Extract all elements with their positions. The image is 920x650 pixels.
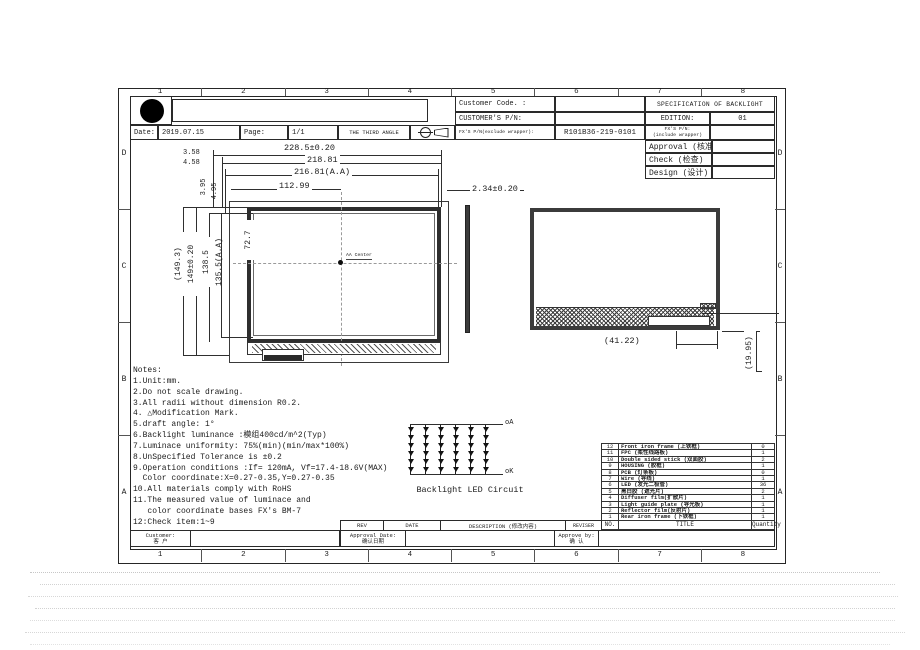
fx-pn-include-value: [710, 125, 775, 140]
parts-row: 12Front iron frame (上铁框)0: [601, 443, 775, 450]
zone-col-label: 8: [702, 549, 784, 562]
company-logo: [140, 99, 164, 123]
dim-top-offset2: 4.58: [182, 159, 201, 168]
parts-row: 3Light guide plate (导光板)1: [601, 501, 775, 508]
led-diode-icon: [438, 459, 444, 464]
spec-title: SPECIFICATION OF BACKLIGHT: [645, 96, 775, 112]
zone-row-label: C: [118, 210, 130, 323]
dim-width-aa: 216.81(A.A): [292, 167, 352, 178]
parts-cell-qty: 1: [751, 450, 774, 455]
third-angle-label: THE THIRD ANGLE: [338, 125, 410, 140]
led-diode-icon: [438, 467, 444, 472]
zone-col-label: 4: [369, 88, 452, 96]
scan-noise-line: [28, 596, 898, 597]
parts-row: 1Rear iron frame (下铁框)1: [601, 513, 775, 520]
edition-value: 01: [710, 112, 775, 125]
dim-top-offset1: 3.58: [182, 149, 201, 158]
parts-header-qty: Quantity: [751, 521, 774, 530]
zone-row-label: A: [118, 436, 130, 548]
customer-pn-value: [555, 112, 645, 125]
zone-row-label: B: [118, 323, 130, 436]
note-line: 10.All materials comply with RoHS: [133, 485, 398, 496]
dim-fpc-offset: (41.22): [602, 336, 642, 347]
customer-cn: 客 户: [153, 539, 167, 545]
design-label: Design (设计): [645, 166, 712, 179]
note-line: 2.Do not scale drawing.: [133, 388, 398, 399]
zone-col-label: 1: [119, 88, 202, 96]
led-diode-icon: [453, 443, 459, 448]
scan-noise-line: [30, 572, 880, 573]
dim-height-outline: 138.5: [201, 237, 213, 287]
zone-column-strip-top: 12345678: [119, 88, 784, 96]
parts-cell-title: Rear iron frame (下铁框): [619, 514, 751, 519]
logo-cell: [130, 96, 172, 125]
dim-width-overall: 228.5±0.20: [282, 143, 337, 154]
design-value: [712, 166, 775, 179]
led-circuit-grid: [410, 424, 505, 474]
parts-row: 6LED (发光二极管)36: [601, 481, 775, 488]
parts-cell-title: LED (发光二极管): [619, 482, 751, 487]
centerline-vertical: [341, 192, 342, 366]
note-line: 3.All radii without dimension R0.2.: [133, 399, 398, 410]
parts-cell-no: 6: [602, 482, 619, 487]
connector-leader-line: [702, 313, 779, 314]
zone-col-label: 2: [202, 88, 285, 96]
led-column: [470, 424, 471, 474]
led-diode-icon: [468, 451, 474, 456]
zone-row-label: B: [775, 323, 785, 436]
edition-label: EDITION:: [645, 112, 710, 125]
scan-noise-line: [40, 584, 895, 585]
fx-pn-exclude-label: FX'S P/N(exclude wrapper):: [455, 125, 555, 140]
note-line: 1.Unit:mm.: [133, 377, 398, 388]
zone-col-label: 7: [619, 88, 702, 96]
notes-block: Notes:1.Unit:mm.2.Do not scale drawing.3…: [133, 366, 398, 529]
zone-column-strip-bottom: 12345678: [119, 549, 784, 562]
led-diode-icon: [483, 443, 489, 448]
led-diode-icon: [453, 459, 459, 464]
led-diode-icon: [453, 451, 459, 456]
led-diode-icon: [408, 459, 414, 464]
led-column: [440, 424, 441, 474]
zone-col-label: 5: [452, 88, 535, 96]
parts-header-title: TITLE: [619, 521, 751, 530]
approval-date-value: [405, 530, 555, 547]
dim-fpc-height: (19.95): [744, 325, 756, 381]
zone-col-label: 4: [369, 549, 452, 562]
led-column: [425, 424, 426, 474]
led-cathode-rail: [410, 474, 503, 475]
aa-center-label: AA Center: [346, 252, 372, 260]
parts-cell-qty: 1: [751, 495, 774, 500]
led-column: [485, 424, 486, 474]
led-diode-icon: [423, 443, 429, 448]
led-anode-rail: [410, 424, 503, 425]
parts-row: 8PCB (灯条板)0: [601, 469, 775, 476]
front-view-active-area: [253, 213, 435, 336]
parts-cell-no: 4: [602, 495, 619, 500]
led-diode-icon: [483, 435, 489, 440]
customer-code-label: Customer Code. :: [455, 96, 555, 112]
dim-height-overall: 149±0.20: [186, 232, 198, 296]
led-diode-icon: [408, 435, 414, 440]
zone-col-label: 1: [119, 549, 202, 562]
parts-cell-qty: 36: [751, 482, 774, 487]
dim-width-half: 112.99: [277, 181, 312, 192]
approval-label: Approval (核准): [645, 140, 712, 153]
led-diode-icon: [453, 427, 459, 432]
ext-line: [183, 207, 247, 208]
back-view-connector-tab: [700, 303, 716, 309]
fx-pn-include-label-line2: (include wrapper): [653, 133, 702, 139]
zone-col-label: 6: [535, 88, 618, 96]
parts-table: 12Front iron frame (上铁框)011FPC (柔性线路板)11…: [601, 443, 775, 530]
led-circuit-caption: Backlight LED Circuit: [400, 485, 540, 495]
page-value: 1/1: [288, 125, 338, 140]
parts-cell-title: Front iron frame (上铁框): [619, 444, 751, 449]
third-angle-cone-icon: [434, 128, 449, 138]
customer-value: [190, 530, 340, 547]
led-diode-icon: [453, 467, 459, 472]
led-diode-icon: [468, 467, 474, 472]
aa-center-mark: [338, 260, 343, 265]
dim-height-half: 72.7: [243, 220, 255, 260]
dim-side-offset2: 4.95: [209, 176, 221, 206]
led-diode-icon: [438, 443, 444, 448]
led-diode-icon: [483, 459, 489, 464]
led-diode-icon: [453, 435, 459, 440]
led-diode-icon: [423, 427, 429, 432]
parts-cell-title: Double sided stick (双面胶): [619, 457, 751, 462]
parts-cell-title: Reflector film(反射片): [619, 508, 751, 513]
note-line: 6.Backlight luminance :模组400cd/m^2(Typ): [133, 431, 398, 442]
ext-line: [183, 355, 229, 356]
zone-col-label: 2: [202, 549, 285, 562]
zone-row-label: D: [775, 97, 785, 210]
parts-cell-title: FPC (柔性线路板): [619, 450, 751, 455]
fx-pn-value: R101B36-219-0101: [555, 125, 645, 140]
note-line: 4. △Modification Mark.: [133, 409, 398, 420]
approve-by-cn: 确 认: [569, 539, 583, 545]
led-diode-icon: [468, 435, 474, 440]
led-anode-terminal-label: oA: [505, 419, 513, 427]
note-line: color coordinate bases FX's BM-7: [133, 507, 398, 518]
dim-width-outline: 218.81: [305, 155, 340, 166]
zone-row-label: A: [775, 436, 785, 548]
date-value: 2019.07.15: [158, 125, 240, 140]
note-line: 8.UnSpecified Tolerance is ±0.2: [133, 453, 398, 464]
zone-col-label: 3: [286, 549, 369, 562]
zone-row-strip-left: DCBA: [118, 97, 130, 548]
scan-noise-line: [30, 644, 890, 645]
parts-cell-no: 9: [602, 463, 619, 468]
zone-col-label: 6: [535, 549, 618, 562]
parts-cell-title: 黑白胶 (遮光片): [619, 489, 751, 494]
led-diode-icon: [468, 443, 474, 448]
zone-row-strip-right: DCBA: [775, 97, 785, 548]
scan-noise-line: [25, 632, 905, 633]
led-diode-icon: [423, 451, 429, 456]
approval-date-cn: 确认日期: [362, 539, 384, 545]
parts-row: 2Reflector film(反射片)1: [601, 507, 775, 514]
ext-line: [222, 157, 223, 207]
led-column: [455, 424, 456, 474]
parts-row: 11FPC (柔性线路板)1: [601, 449, 775, 456]
led-diode-icon: [438, 451, 444, 456]
led-diode-icon: [423, 435, 429, 440]
side-view-bar: [465, 205, 470, 333]
parts-row: 4Diffuser film(扩散片)1: [601, 494, 775, 501]
parts-cell-title: Wire (导线): [619, 476, 751, 481]
fpc-connector-contact: [264, 355, 302, 360]
approval-value: [712, 140, 775, 153]
parts-cell-no: 1: [602, 514, 619, 519]
title-blank-box: [172, 99, 428, 122]
led-diode-icon: [423, 467, 429, 472]
led-diode-icon: [483, 451, 489, 456]
led-diode-icon: [438, 427, 444, 432]
led-column: [410, 424, 411, 474]
ext-line: [438, 169, 439, 213]
approve-by-value: [598, 530, 775, 547]
third-angle-circle-icon: [420, 127, 431, 138]
dim-line-fpc-height: [756, 332, 757, 372]
ext-line: [209, 213, 253, 214]
parts-header-no: NO.: [602, 521, 619, 530]
led-diode-icon: [468, 427, 474, 432]
parts-cell-title: Light guide plate (导光板): [619, 502, 751, 507]
date-label: Date:: [130, 125, 158, 140]
note-line: Notes:: [133, 366, 398, 377]
zone-col-label: 3: [286, 88, 369, 96]
note-line: 7.Luminace uniformity: 75%(min)(min/max*…: [133, 442, 398, 453]
note-line: 11.The measured value of luminace and: [133, 496, 398, 507]
scan-noise-line: [35, 608, 895, 609]
note-line: 5.draft angle: 1°: [133, 420, 398, 431]
led-cathode-terminal-label: oK: [505, 468, 513, 476]
parts-cell-qty: 1: [751, 463, 774, 468]
ext-line: [717, 331, 718, 349]
parts-cell-no: 11: [602, 450, 619, 455]
check-value: [712, 153, 775, 166]
page-label: Page:: [240, 125, 288, 140]
parts-row: 5黑白胶 (遮光片)2: [601, 488, 775, 495]
parts-row: 9HOUSING (胶框)1: [601, 462, 775, 469]
dim-thickness: 2.34±0.20: [470, 184, 520, 195]
customer-pn-label: CUSTOMER'S P/N:: [455, 112, 555, 125]
parts-header-row: NO.TITLEQuantity: [601, 520, 775, 531]
zone-col-label: 7: [619, 549, 702, 562]
scan-noise-line: [30, 620, 895, 621]
dim-height-aa: 135.5(A.A): [214, 227, 226, 297]
ext-line: [221, 337, 253, 338]
parts-cell-title: PCB (灯条板): [619, 470, 751, 475]
led-diode-icon: [468, 459, 474, 464]
dim-line-fpc-offset: [676, 344, 717, 345]
led-diode-icon: [408, 467, 414, 472]
zone-row-label: D: [118, 97, 130, 210]
check-label: Check (检查): [645, 153, 712, 166]
back-view-connector-notch: [648, 316, 710, 326]
parts-row: 10Double sided stick (双面胶)2: [601, 456, 775, 463]
led-diode-icon: [438, 435, 444, 440]
dim-height-overall-ref: (149.3): [173, 232, 185, 296]
note-line: 9.Operation conditions :If= 120mA, Vf=17…: [133, 464, 398, 475]
led-diode-icon: [408, 443, 414, 448]
led-diode-icon: [408, 427, 414, 432]
zone-row-label: C: [775, 210, 785, 323]
customer-code-value: [555, 96, 645, 112]
led-diode-icon: [483, 427, 489, 432]
ext-line: [676, 331, 677, 349]
note-line: Color coordinate:X=0.27-0.35,Y=0.27-0.35: [133, 474, 398, 485]
ext-line: [441, 150, 442, 207]
third-angle-symbols: [410, 125, 455, 140]
led-diode-icon: [408, 451, 414, 456]
led-diode-icon: [483, 467, 489, 472]
centerline-horizontal: [233, 263, 457, 264]
drawing-sheet: 12345678 12345678 DCBA DCBA Customer Cod…: [0, 0, 920, 650]
led-diode-icon: [423, 459, 429, 464]
parts-cell-title: HOUSING (胶框): [619, 463, 751, 468]
parts-cell-title: Diffuser film(扩散片): [619, 495, 751, 500]
parts-row: 7Wire (导线)1: [601, 475, 775, 482]
parts-cell-qty: 1: [751, 514, 774, 519]
zone-col-label: 8: [702, 88, 784, 96]
zone-col-label: 5: [452, 549, 535, 562]
